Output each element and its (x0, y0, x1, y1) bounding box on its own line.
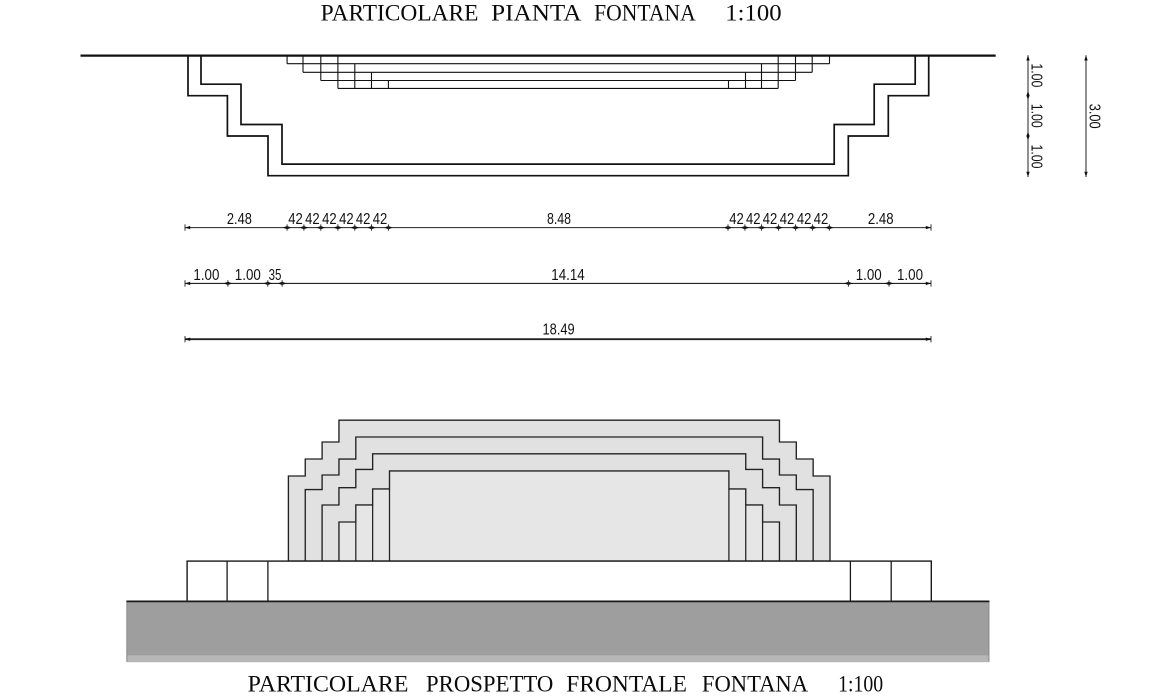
svg-text:14.14: 14.14 (551, 267, 584, 284)
svg-text:1.00: 1.00 (1028, 145, 1045, 169)
svg-text:1:100: 1:100 (838, 671, 883, 697)
svg-text:42: 42 (780, 211, 795, 228)
svg-text:42: 42 (729, 211, 744, 228)
svg-text:PARTICOLARE: PARTICOLARE (321, 1, 479, 26)
svg-text:3.00: 3.00 (1086, 104, 1103, 129)
svg-text:42: 42 (305, 211, 320, 228)
svg-text:42: 42 (373, 211, 388, 228)
svg-text:1.00: 1.00 (193, 267, 219, 284)
svg-text:1.00: 1.00 (856, 267, 882, 284)
svg-text:8.48: 8.48 (547, 211, 571, 228)
svg-text:FRONTALE: FRONTALE (566, 671, 687, 697)
svg-text:PARTICOLARE: PARTICOLARE (248, 671, 409, 697)
svg-text:1.00: 1.00 (235, 267, 261, 284)
svg-text:1.00: 1.00 (897, 267, 923, 284)
svg-text:42: 42 (356, 211, 371, 228)
svg-text:42: 42 (322, 211, 337, 228)
svg-text:42: 42 (797, 211, 812, 228)
svg-text:2.48: 2.48 (868, 211, 894, 228)
svg-text:1.00: 1.00 (1028, 63, 1045, 87)
svg-text:42: 42 (288, 211, 303, 228)
svg-text:42: 42 (746, 211, 761, 228)
svg-text:1.00: 1.00 (1028, 104, 1045, 128)
svg-text:FONTANA: FONTANA (702, 671, 808, 697)
svg-text:FONTANA: FONTANA (594, 1, 696, 26)
svg-text:1:100: 1:100 (725, 1, 781, 26)
svg-text:35: 35 (269, 267, 282, 284)
svg-text:42: 42 (814, 211, 829, 228)
svg-text:42: 42 (339, 211, 354, 228)
svg-text:PIANTA: PIANTA (491, 1, 582, 26)
svg-text:2.48: 2.48 (227, 211, 252, 228)
svg-text:18.49: 18.49 (543, 322, 575, 339)
svg-text:PROSPETTO: PROSPETTO (426, 671, 553, 697)
svg-text:42: 42 (763, 211, 778, 228)
